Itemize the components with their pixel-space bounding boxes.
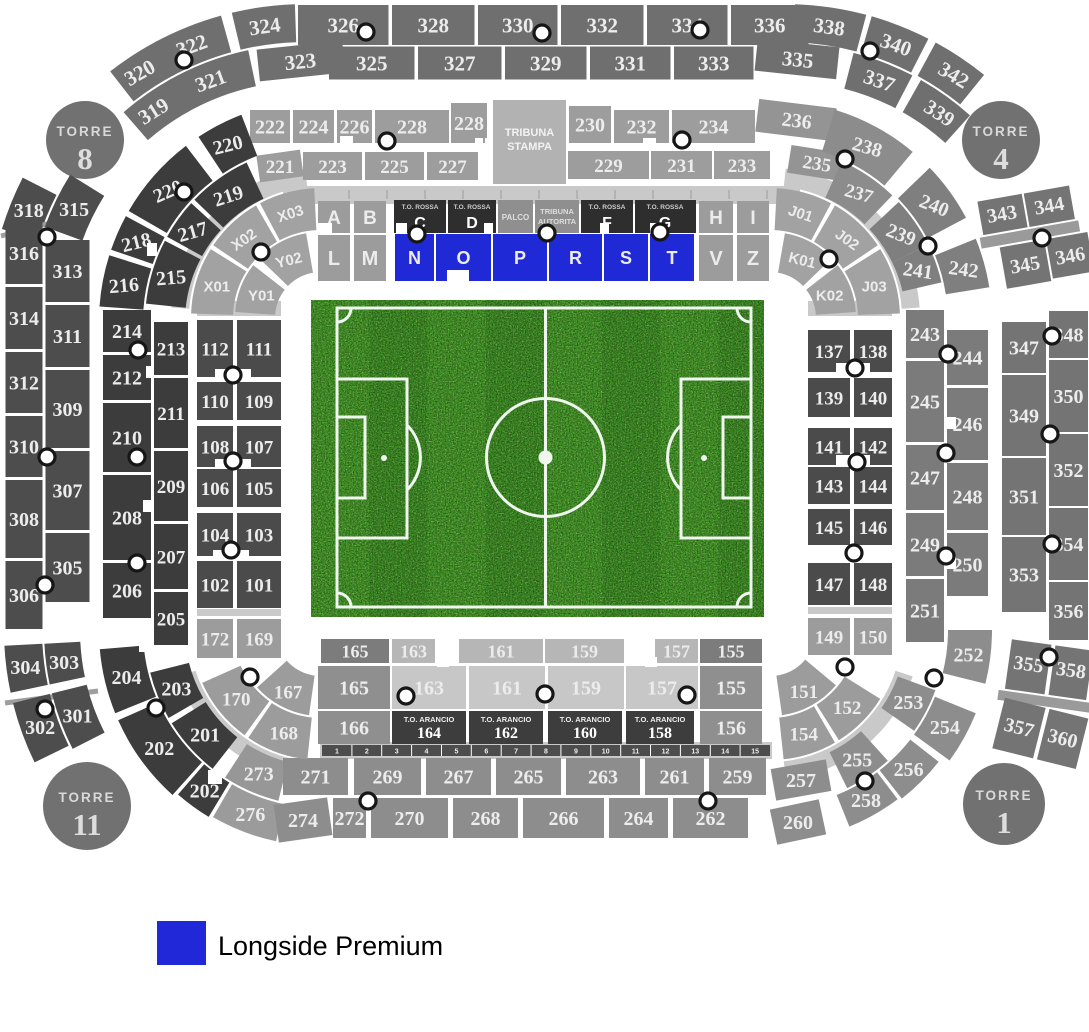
svg-text:7: 7 [514,749,518,756]
svg-text:331: 331 [614,52,646,76]
svg-text:203: 203 [161,679,191,701]
svg-text:Y01: Y01 [248,288,275,305]
svg-text:1: 1 [335,749,339,756]
svg-text:TORRE: TORRE [58,790,115,805]
svg-text:245: 245 [910,392,940,414]
svg-text:151: 151 [790,682,819,703]
svg-text:242: 242 [947,257,980,283]
svg-text:TRIBUNA: TRIBUNA [540,207,574,216]
svg-text:14: 14 [721,749,729,756]
svg-text:N: N [408,248,421,268]
svg-text:TORRE: TORRE [972,124,1029,139]
svg-text:1: 1 [996,805,1012,840]
svg-text:347: 347 [1009,338,1039,360]
svg-text:251: 251 [910,601,940,623]
svg-text:TRIBUNA: TRIBUNA [505,127,555,139]
svg-text:Z: Z [747,248,759,270]
svg-text:144: 144 [859,476,888,497]
svg-text:241: 241 [902,258,935,284]
svg-text:9: 9 [574,749,578,756]
svg-text:314: 314 [9,308,39,330]
svg-text:205: 205 [157,609,186,630]
svg-text:157: 157 [647,678,677,700]
svg-text:159: 159 [571,678,601,700]
svg-text:161: 161 [488,642,515,662]
svg-text:165: 165 [342,642,369,662]
svg-text:165: 165 [339,678,369,700]
svg-text:235: 235 [801,152,832,177]
svg-text:213: 213 [157,339,186,360]
svg-text:TORRE: TORRE [975,788,1032,803]
svg-text:201: 201 [190,725,220,747]
svg-text:256: 256 [894,759,924,781]
svg-text:TORRE: TORRE [56,124,113,139]
svg-text:265: 265 [514,767,544,789]
svg-text:323: 323 [283,48,317,75]
svg-text:229: 229 [594,156,623,177]
svg-text:148: 148 [859,575,888,596]
svg-text:247: 247 [910,468,940,490]
svg-text:272: 272 [335,808,365,830]
svg-text:15: 15 [751,749,759,756]
svg-text:266: 266 [549,808,579,830]
svg-text:259: 259 [723,767,753,789]
svg-text:101: 101 [245,575,274,596]
svg-text:308: 308 [9,509,39,531]
svg-text:312: 312 [9,373,39,395]
svg-text:255: 255 [842,750,872,772]
svg-text:328: 328 [417,14,449,38]
svg-text:231: 231 [667,156,696,177]
svg-text:146: 146 [859,518,888,539]
svg-text:156: 156 [716,718,746,740]
svg-text:210: 210 [112,428,142,450]
svg-text:11: 11 [632,749,640,756]
svg-text:352: 352 [1054,460,1084,482]
svg-text:327: 327 [444,52,476,76]
svg-text:304: 304 [10,657,40,679]
svg-text:T.O. ROSSA: T.O. ROSSA [402,204,439,211]
svg-text:T.O. ARANCIO: T.O. ARANCIO [560,715,611,724]
svg-text:H: H [709,208,723,229]
svg-text:V: V [709,248,723,270]
svg-text:301: 301 [63,706,93,728]
svg-text:107: 107 [245,437,274,458]
svg-text:D: D [466,215,478,232]
svg-text:350: 350 [1054,386,1084,408]
svg-text:313: 313 [53,261,83,283]
svg-text:249: 249 [910,535,940,557]
svg-text:8: 8 [77,141,93,176]
svg-text:163: 163 [400,642,427,662]
svg-text:227: 227 [438,157,467,178]
svg-text:R: R [569,248,582,268]
svg-text:212: 212 [112,368,142,390]
svg-text:S: S [620,248,632,268]
svg-text:310: 310 [9,437,39,459]
svg-text:M: M [362,248,379,270]
svg-text:335: 335 [781,46,815,73]
svg-text:252: 252 [954,645,984,667]
svg-text:315: 315 [59,199,89,221]
svg-text:108: 108 [201,437,230,458]
svg-text:302: 302 [25,717,55,739]
svg-text:253: 253 [893,692,923,714]
svg-text:11: 11 [72,807,101,842]
svg-text:155: 155 [718,642,745,662]
svg-text:154: 154 [789,725,818,746]
svg-text:J03: J03 [862,279,887,296]
svg-text:111: 111 [246,339,272,360]
svg-text:222: 222 [255,117,285,139]
svg-text:311: 311 [53,326,82,348]
svg-text:157: 157 [663,642,690,662]
svg-text:170: 170 [222,689,251,710]
svg-text:5: 5 [454,749,458,756]
svg-text:155: 155 [716,678,746,700]
svg-text:330: 330 [502,14,534,38]
svg-text:162: 162 [494,725,518,742]
svg-text:L: L [328,248,340,270]
svg-text:T.O. ROSSA: T.O. ROSSA [454,204,491,211]
svg-text:2: 2 [365,749,369,756]
svg-text:106: 106 [201,479,230,500]
svg-text:221: 221 [266,157,295,178]
svg-text:303: 303 [49,652,79,674]
svg-text:P: P [514,248,526,268]
svg-text:269: 269 [373,767,403,789]
svg-text:336: 336 [754,14,786,38]
svg-text:STAMPA: STAMPA [507,141,552,153]
svg-text:206: 206 [112,581,142,603]
svg-text:PALCO: PALCO [502,213,529,222]
svg-text:109: 109 [245,392,274,413]
svg-text:228: 228 [397,117,427,139]
svg-text:102: 102 [201,575,230,596]
svg-text:324: 324 [247,12,282,40]
svg-text:12: 12 [662,749,670,756]
svg-text:254: 254 [930,717,960,739]
svg-text:6: 6 [484,749,488,756]
svg-text:3: 3 [395,749,399,756]
svg-text:8: 8 [544,749,548,756]
svg-text:143: 143 [815,476,844,497]
svg-text:271: 271 [301,767,331,789]
svg-text:225: 225 [380,157,409,178]
svg-text:Longside Premium: Longside Premium [218,931,443,961]
svg-text:207: 207 [157,547,186,568]
svg-text:112: 112 [201,339,228,360]
svg-text:260: 260 [783,812,813,834]
svg-text:226: 226 [340,117,370,139]
svg-text:158: 158 [648,725,672,742]
svg-text:215: 215 [155,266,187,291]
svg-text:152: 152 [833,698,862,719]
svg-text:K02: K02 [816,288,844,305]
svg-text:309: 309 [53,399,83,421]
svg-text:307: 307 [53,481,83,503]
svg-text:273: 273 [244,763,274,785]
svg-text:138: 138 [859,342,888,363]
svg-text:233: 233 [728,156,757,177]
svg-text:4: 4 [993,141,1009,176]
svg-text:208: 208 [112,508,142,530]
svg-text:246: 246 [953,414,983,436]
svg-text:274: 274 [288,810,318,832]
svg-text:145: 145 [815,518,844,539]
svg-text:332: 332 [586,14,618,38]
svg-text:161: 161 [492,678,522,700]
svg-text:103: 103 [245,525,274,546]
svg-text:10: 10 [602,749,610,756]
svg-text:262: 262 [696,808,726,830]
svg-text:268: 268 [471,808,501,830]
svg-text:349: 349 [1009,406,1039,428]
svg-text:164: 164 [417,725,441,742]
svg-text:202: 202 [144,738,174,760]
svg-text:13: 13 [691,749,699,756]
svg-text:X01: X01 [203,279,230,296]
svg-text:O: O [456,248,470,268]
svg-text:261: 261 [660,767,690,789]
svg-text:150: 150 [859,627,888,648]
svg-text:248: 248 [953,487,983,509]
svg-text:270: 270 [395,808,425,830]
svg-text:169: 169 [245,629,274,650]
svg-text:258: 258 [851,790,881,812]
svg-text:139: 139 [815,388,844,409]
svg-text:358: 358 [1055,658,1088,684]
svg-text:236: 236 [781,108,813,133]
svg-text:356: 356 [1054,601,1084,623]
svg-text:I: I [750,208,755,229]
svg-text:228: 228 [454,113,484,135]
svg-text:167: 167 [274,683,303,704]
svg-text:223: 223 [318,157,347,178]
svg-text:209: 209 [157,477,186,498]
svg-text:T.O. ARANCIO: T.O. ARANCIO [404,715,455,724]
svg-text:250: 250 [953,555,983,577]
svg-text:159: 159 [571,642,598,662]
svg-text:140: 140 [859,388,888,409]
svg-text:305: 305 [53,558,83,580]
svg-text:T.O. ARANCIO: T.O. ARANCIO [481,715,532,724]
svg-text:338: 338 [812,13,847,41]
svg-text:276: 276 [235,804,265,826]
svg-text:211: 211 [157,404,184,425]
svg-text:4: 4 [425,749,429,756]
svg-text:168: 168 [269,723,298,744]
svg-text:306: 306 [9,585,39,607]
svg-text:T.O. ARANCIO: T.O. ARANCIO [635,715,686,724]
svg-text:204: 204 [112,667,142,689]
svg-text:T.O. ROSSA: T.O. ROSSA [647,204,684,211]
svg-text:351: 351 [1009,487,1039,509]
svg-text:243: 243 [910,324,940,346]
svg-text:160: 160 [573,725,597,742]
svg-text:214: 214 [112,321,142,343]
svg-text:234: 234 [699,117,729,139]
svg-text:326: 326 [327,14,359,38]
svg-text:263: 263 [588,767,618,789]
svg-text:216: 216 [108,274,140,299]
svg-text:166: 166 [339,718,369,740]
svg-text:137: 137 [815,342,844,363]
svg-text:T: T [667,248,678,268]
svg-text:318: 318 [14,200,44,222]
svg-text:149: 149 [815,627,844,648]
svg-text:264: 264 [624,808,654,830]
svg-text:110: 110 [201,392,228,413]
svg-text:232: 232 [627,117,657,139]
svg-text:T.O. ROSSA: T.O. ROSSA [589,204,626,211]
svg-text:329: 329 [530,52,562,76]
svg-text:316: 316 [9,243,39,265]
svg-text:172: 172 [201,629,230,650]
svg-text:353: 353 [1009,565,1039,587]
svg-text:333: 333 [698,52,730,76]
svg-text:267: 267 [444,767,474,789]
svg-text:B: B [363,208,377,229]
svg-text:105: 105 [245,479,274,500]
svg-text:163: 163 [414,678,444,700]
svg-text:257: 257 [786,770,816,792]
svg-text:147: 147 [815,575,844,596]
svg-text:230: 230 [575,115,605,137]
svg-text:325: 325 [356,52,388,76]
svg-text:224: 224 [299,117,329,139]
